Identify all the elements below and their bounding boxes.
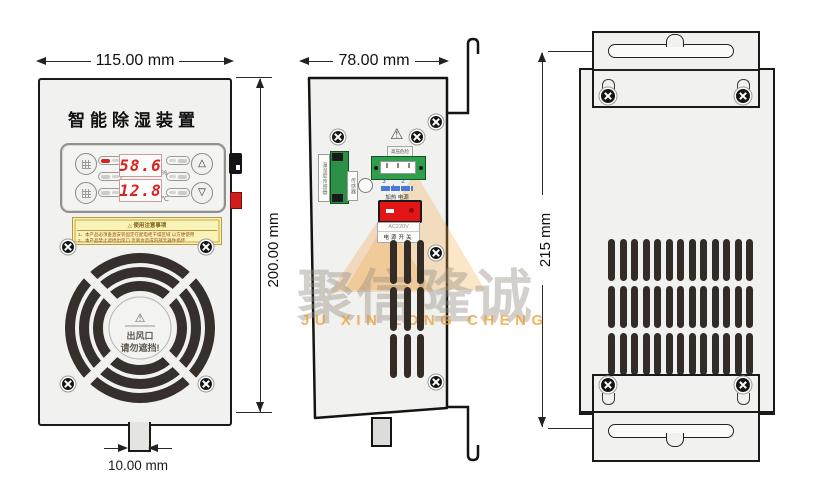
vent-slot: [735, 286, 742, 328]
up-arrow-icon: △: [198, 159, 206, 169]
vent-slot: [677, 333, 684, 375]
vent-slot: [404, 334, 411, 378]
vent-slot: [746, 333, 753, 375]
vent-slot: [631, 333, 638, 375]
side-screw-1: [332, 131, 344, 143]
watermark-english: JU XIN LONG CHENG: [301, 312, 549, 329]
vent-slot: [608, 333, 615, 375]
vent-slot: [620, 239, 627, 281]
vent-slot: [390, 334, 397, 378]
vent-slot: [631, 286, 638, 328]
power-rocker-switch: [378, 200, 422, 223]
vent-slot: [677, 286, 684, 328]
drain-hole: [358, 178, 373, 193]
vent-slot: [404, 240, 411, 284]
sensor-label: 温湿度传感器: [318, 154, 330, 202]
sensor-label-2: 传感器: [347, 171, 358, 201]
side-switch-stub: [230, 192, 242, 209]
height-dim-arrow-up: [256, 78, 264, 88]
side-screw-2: [411, 131, 423, 143]
height-dim-arrow-down: [256, 402, 264, 412]
front-width-dimension: 115.00 mm: [36, 52, 234, 70]
top-slot-notch: [666, 34, 684, 47]
front-height-label: 200.00 mm: [265, 205, 281, 295]
side-connector-pin: [236, 165, 240, 170]
vent-slot: [700, 239, 707, 281]
vent-slot: [620, 286, 627, 328]
vent-slot: [712, 333, 719, 375]
side-screw-5: [430, 376, 442, 388]
vent-slot: [643, 333, 650, 375]
vent-slot: [643, 286, 650, 328]
vent-slot: [643, 239, 650, 281]
side-vent-grid: [390, 240, 424, 378]
vent-slot: [404, 287, 411, 331]
vent-slot: [620, 333, 627, 375]
vent-slot: [631, 239, 638, 281]
control-panel: 58.6 % 12.8 ℃ △ ▽: [60, 143, 226, 213]
back-height-label: 215 mm: [537, 195, 553, 285]
side-screw-3: [430, 116, 442, 128]
vent-slot: [712, 239, 719, 281]
vent-slot: [666, 286, 673, 328]
vent-slot: [735, 333, 742, 375]
vent-slot: [723, 333, 730, 375]
fan-donotblock-text: 请勿遮挡!: [121, 342, 160, 353]
vent-slot: [654, 286, 661, 328]
product-diagram: 聚信隆诚 JU XIN LONG CHENG 115.00 mm 智能除湿装置: [0, 0, 820, 504]
vent-slot: [689, 333, 696, 375]
back-body-bottom-edge: [579, 411, 775, 413]
bottom-slot-tab: [666, 433, 684, 447]
vent-slot: [700, 333, 707, 375]
vent-slot: [608, 286, 615, 328]
vent-slot: [700, 286, 707, 328]
function-button-2: [75, 182, 97, 204]
side-connector-stub: [229, 153, 242, 174]
voltage-label: AC220V: [378, 223, 419, 232]
back-screw-bl: [601, 378, 615, 392]
caution-line-1: 1、本产品必须垂直安装固定在配电柜干燥区域 以方便使用: [78, 232, 216, 238]
down-button: ▽: [191, 182, 213, 204]
indicator-right-3: [166, 188, 190, 197]
terminal-strip: [381, 186, 413, 191]
vent-slot: [654, 239, 661, 281]
vent-slot: [746, 239, 753, 281]
caution-heading: △ 使用注意事项: [73, 221, 221, 229]
hazard-warning-icon: ⚠: [390, 127, 403, 142]
bottom-mounting-bracket: [592, 374, 760, 462]
back-dim-arrow-down: [538, 417, 546, 427]
vent-slot: [417, 334, 424, 378]
humidity-display: 58.6: [119, 154, 162, 177]
vent-slot: [746, 286, 753, 328]
vent-slot: [608, 239, 615, 281]
vent-slot: [723, 286, 730, 328]
vent-slot: [666, 239, 673, 281]
top-bracket-fold: [594, 69, 758, 71]
dim-arrow-right: [224, 57, 234, 65]
bottom-hook-left: [602, 393, 615, 405]
vent-slot: [417, 287, 424, 331]
caution-line-2: 2、本产品禁止遮挡出风口 否则会造成内部元器件损坏: [78, 238, 216, 244]
fan-outlet-text: 出风口: [126, 330, 153, 341]
vent-slot: [654, 333, 661, 375]
fan-warning-icon: ⚠: [135, 311, 146, 325]
vent-slot: [390, 240, 397, 284]
back-vent-grid: [608, 239, 753, 375]
down-arrow-icon: ▽: [198, 188, 206, 198]
function-button-1-icon: [82, 160, 91, 169]
tab-width-label: 10.00 mm: [98, 458, 178, 473]
vent-slot: [390, 287, 397, 331]
tab-dim-arrow-left: [148, 444, 158, 452]
back-screw-tl: [601, 89, 615, 103]
vent-slot: [677, 239, 684, 281]
function-button-1: [75, 153, 97, 175]
vent-slot: [417, 240, 424, 284]
vent-slot: [666, 333, 673, 375]
tab-dim-arrow-right: [118, 444, 128, 452]
up-button: △: [191, 153, 213, 175]
vent-slot: [735, 239, 742, 281]
vent-slot: [723, 239, 730, 281]
vent-slot: [712, 286, 719, 328]
back-screw-tr: [736, 89, 750, 103]
vent-slot: [689, 239, 696, 281]
caution-label: △ 使用注意事项 1、本产品必须垂直安装固定在配电柜干燥区域 以方便使用 2、本…: [72, 217, 222, 245]
vent-slot: [689, 286, 696, 328]
device-title: 智能除湿装置: [44, 106, 224, 131]
side-screw-4: [430, 247, 442, 259]
dim-arrow-left: [36, 57, 46, 65]
temperature-display: 12.8: [119, 179, 162, 202]
fan-grille: ⚠ 出风口 请勿遮挡!: [63, 251, 217, 405]
indicator-right-1: [166, 156, 190, 165]
back-screw-br: [736, 378, 750, 392]
front-width-label: 115.00 mm: [91, 52, 180, 70]
led-on: [101, 159, 110, 163]
terminal-pcb: [371, 156, 426, 180]
back-dim-arrow-up: [538, 52, 546, 62]
bottom-hook-right: [737, 393, 750, 405]
function-button-2-icon: [82, 189, 91, 198]
indicator-right-2: [166, 172, 190, 181]
